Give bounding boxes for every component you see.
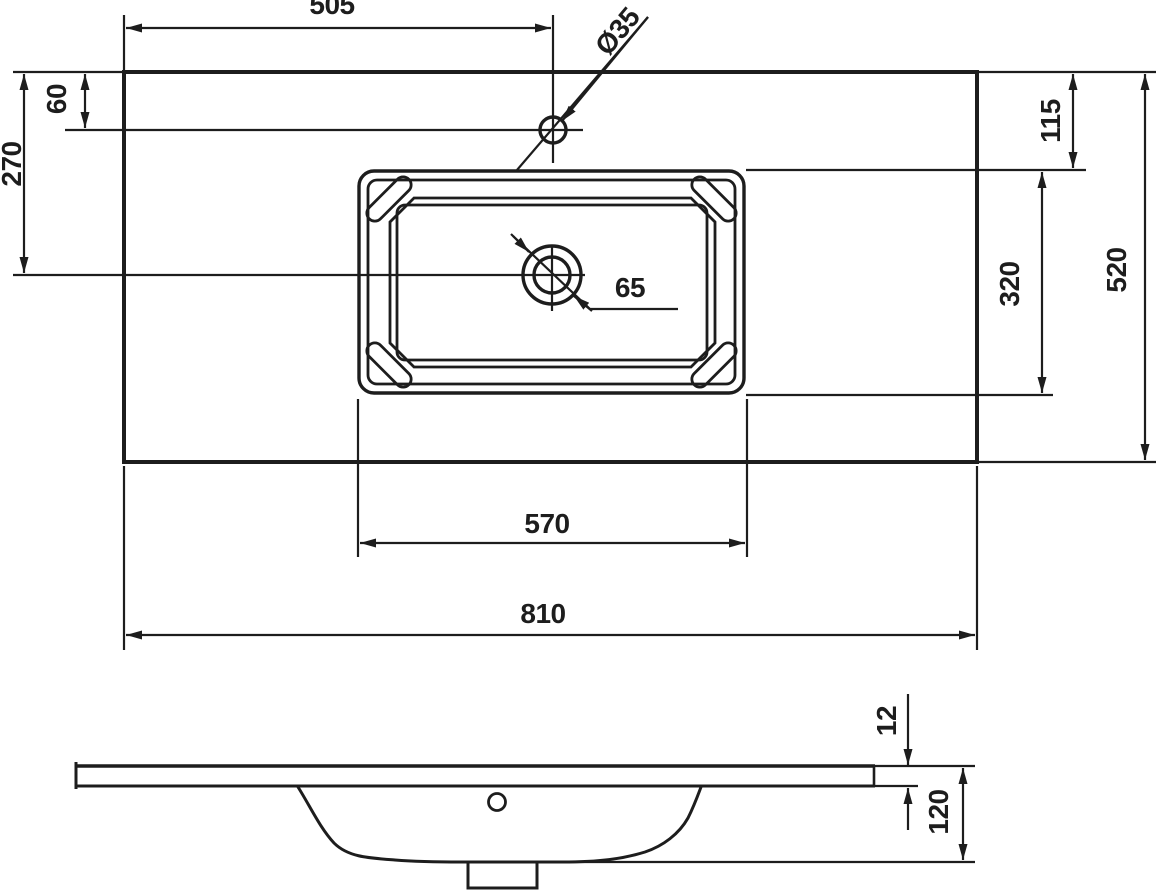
bowl-underside-profile	[298, 787, 701, 862]
dim-label-120: 120	[923, 789, 954, 834]
overflow-hole	[489, 794, 506, 811]
drain-leader-arrow-lower	[574, 296, 592, 311]
dim-label-570: 570	[524, 508, 569, 539]
dim-label-270: 270	[0, 141, 27, 186]
dim-label-115: 115	[1035, 99, 1066, 143]
dim-label-65: 65	[615, 272, 645, 303]
dim-label-12: 12	[871, 706, 902, 736]
dim-label-505: 505	[309, 0, 354, 20]
dim-label-810: 810	[520, 598, 565, 629]
dim-label-320: 320	[994, 261, 1025, 306]
washbasin-technical-drawing: 505 Ø35 60 270 115 320 520 65 570 810 12…	[0, 0, 1158, 893]
dim-label-520: 520	[1101, 247, 1132, 292]
extension-lines-top-view	[13, 15, 1156, 650]
drain-trap-box	[468, 861, 537, 888]
dim-label-60: 60	[41, 84, 72, 114]
dim-label-faucet-diameter: Ø35	[589, 2, 646, 61]
extension-lines-side-view	[448, 766, 975, 862]
drain-leader-arrow-upper	[511, 234, 529, 252]
drain-leader-line	[513, 236, 678, 309]
